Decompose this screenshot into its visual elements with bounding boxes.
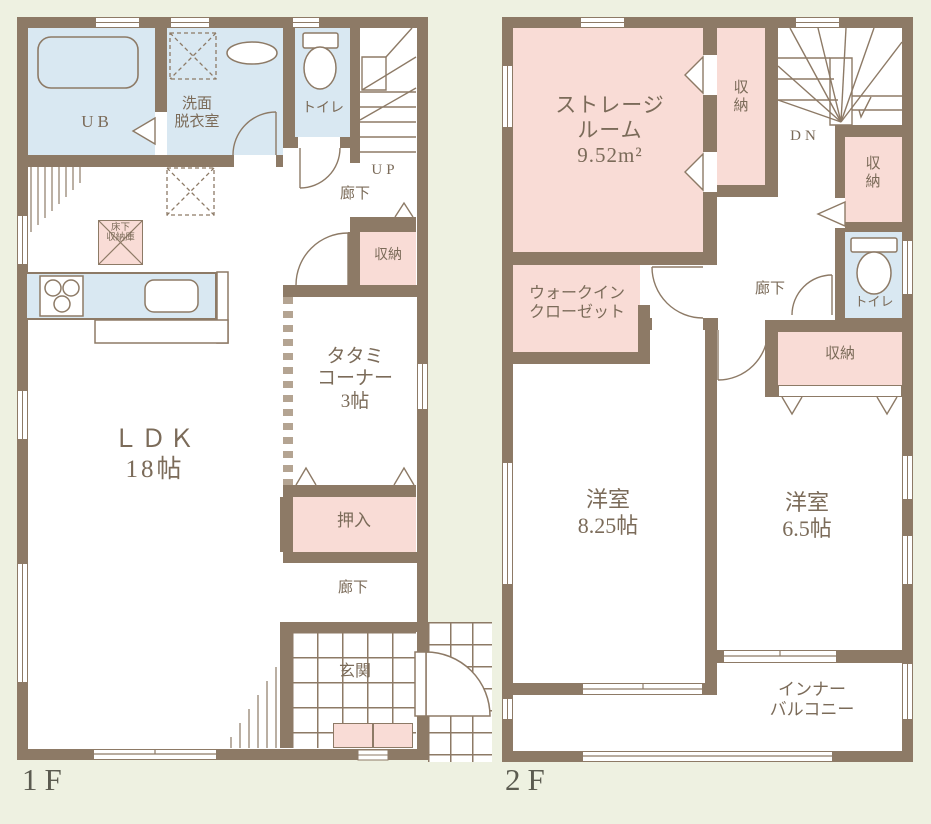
wall <box>835 222 902 232</box>
wall <box>765 320 902 332</box>
door-opening <box>835 198 845 228</box>
wall <box>902 17 913 762</box>
balcony-opening <box>582 751 833 762</box>
closet-upper-2f-label: 収 納 <box>727 80 755 115</box>
wall <box>835 232 845 318</box>
window <box>502 698 513 720</box>
toilet-2f-label: トイレ <box>847 294 901 309</box>
up-label: UP <box>362 162 408 180</box>
entrance-label: 玄関 <box>330 663 380 682</box>
wall <box>765 330 778 397</box>
window <box>580 17 625 28</box>
bedroom1-label: 洋室 8.25帖 <box>548 487 668 539</box>
window <box>902 240 913 295</box>
floor-1f-label: 1F <box>22 762 69 798</box>
closet-right-2f-label: 収 納 <box>859 156 887 191</box>
door-opening <box>703 55 717 95</box>
tatami-corner-label: タタミ コーナー 3帖 <box>300 346 410 413</box>
floor-plan-canvas: UB 洗面 脱衣室 トイレ UP 廊下 収納 床下 収納庫 ＬＤＫ 18帖 タタ… <box>0 0 931 824</box>
bedroom2-label: 洋室 6.5帖 <box>747 490 867 542</box>
storage-room-label: ストレージ ルーム 9.52m² <box>528 93 692 167</box>
window <box>502 65 513 128</box>
closet-track <box>778 385 902 397</box>
wall <box>835 125 902 137</box>
inner-balcony-label: インナー バルコニー <box>752 680 872 720</box>
wall <box>502 683 582 695</box>
ldk-label: ＬＤＫ 18帖 <box>90 425 220 484</box>
dn-label: DN <box>783 128 827 146</box>
wall <box>705 318 717 695</box>
wall <box>765 17 778 197</box>
window <box>795 17 840 28</box>
wall <box>502 352 650 364</box>
sliding-door <box>723 650 837 663</box>
hallway-upper-label: 廊下 <box>330 186 380 204</box>
closet-1f-label: 収納 <box>363 248 413 265</box>
washroom-label: 洗面 脱衣室 <box>157 96 237 131</box>
window <box>902 455 913 500</box>
toilet-1f-label: トイレ <box>293 101 353 118</box>
underfloor-storage-label: 床下 収納庫 <box>98 224 143 244</box>
sliding-window <box>582 683 703 695</box>
oshiire-label: 押入 <box>324 511 384 531</box>
window <box>502 462 513 585</box>
walk-in-closet-label: ウォークイン クローゼット <box>515 285 639 323</box>
wall <box>837 650 902 663</box>
window <box>902 663 913 720</box>
door-opening <box>703 152 717 192</box>
floor-2f-label: 2F <box>505 762 552 798</box>
window <box>902 535 913 585</box>
wall <box>502 17 513 762</box>
wall <box>703 683 717 695</box>
wall <box>502 252 717 265</box>
hallway-2f-label: 廊下 <box>746 281 794 299</box>
ub-label: UB <box>67 112 127 132</box>
closet-bedroom2-label: 収納 <box>810 346 870 364</box>
hallway-lower-label: 廊下 <box>328 580 378 598</box>
